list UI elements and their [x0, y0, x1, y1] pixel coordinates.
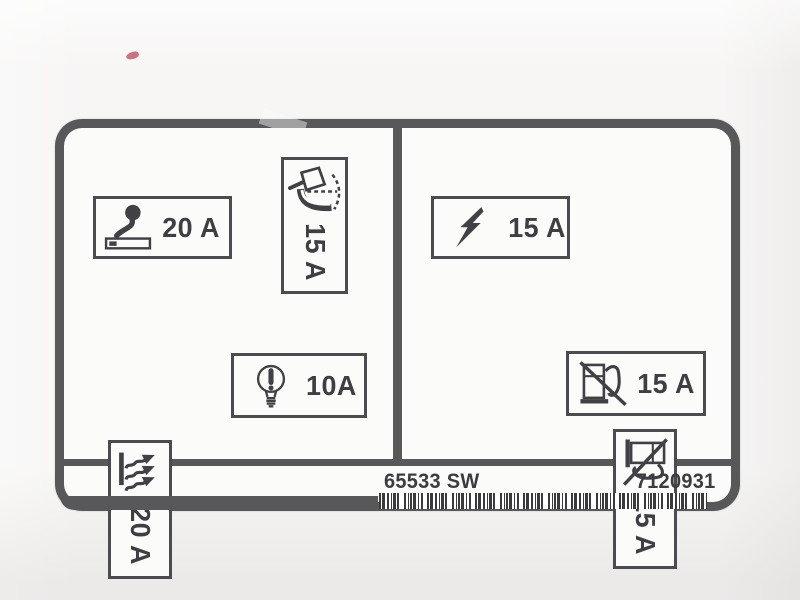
heated-rear-window-icon — [114, 447, 166, 499]
fuse-fuel-pump-crossed: 15 A — [566, 351, 706, 416]
fuse-amp-label: 15 A — [637, 368, 695, 400]
fuse-bulb-warning: 10A — [231, 353, 367, 418]
panel-divider — [393, 123, 402, 466]
red-mark-artifact — [125, 51, 139, 61]
cigarette-lighter-icon — [102, 202, 154, 254]
fuse-amp-label: 10A — [306, 370, 357, 402]
border-wear-artifact — [259, 108, 308, 137]
windshield-wiper-icon — [288, 164, 342, 218]
fuse-amp-label: 15 A — [299, 223, 331, 281]
bottom-solid-bar — [60, 496, 378, 510]
part-number: 65533 SW — [384, 470, 479, 494]
fuse-box-label: 20 A 15 A — [55, 119, 740, 511]
fuse-cigarette-lighter: 20 A — [93, 196, 232, 259]
fuse-amp-label: 20 A — [124, 507, 156, 565]
fuse-amp-label: 15 A — [508, 212, 566, 244]
lightning-bolt-icon — [449, 203, 495, 253]
fuse-power-outlet: 15 A — [431, 196, 570, 259]
bulb-warning-icon — [246, 361, 296, 411]
barcode — [379, 493, 707, 509]
fuse-windshield-wiper: 15 A — [281, 157, 348, 294]
fuel-pump-crossed-icon — [577, 358, 629, 410]
fuse-amp-label: 20 A — [162, 212, 220, 244]
serial-number: 7120931 — [636, 470, 708, 494]
